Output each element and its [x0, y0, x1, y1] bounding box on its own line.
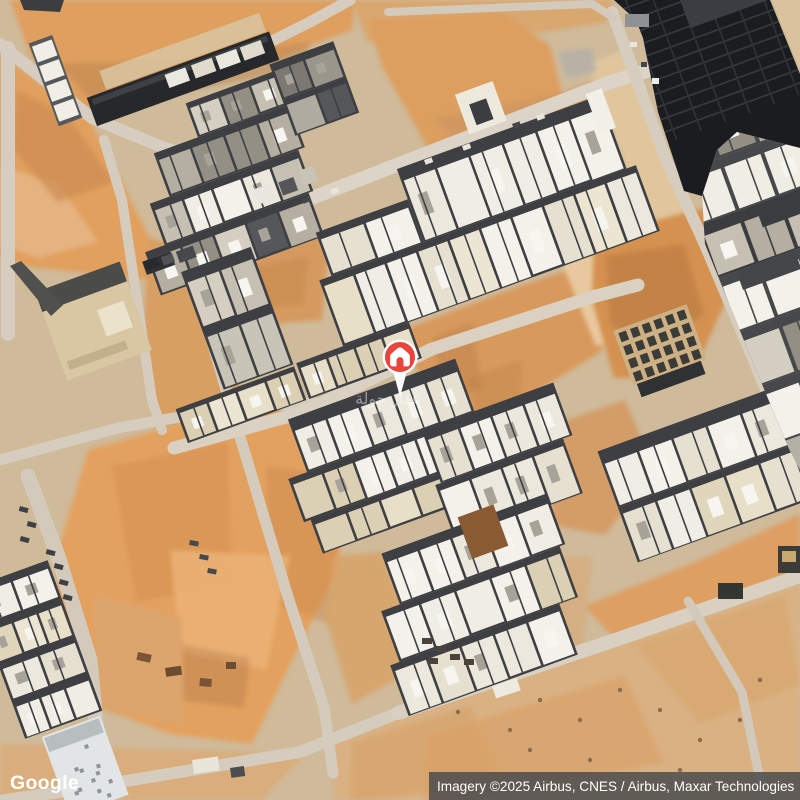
svg-text:عقار جولة: عقار جولة: [355, 391, 421, 408]
svg-text:Imagery ©2025 Airbus, CNES / A: Imagery ©2025 Airbus, CNES / Airbus, Max…: [437, 779, 795, 794]
svg-text:Google: Google: [10, 772, 79, 794]
